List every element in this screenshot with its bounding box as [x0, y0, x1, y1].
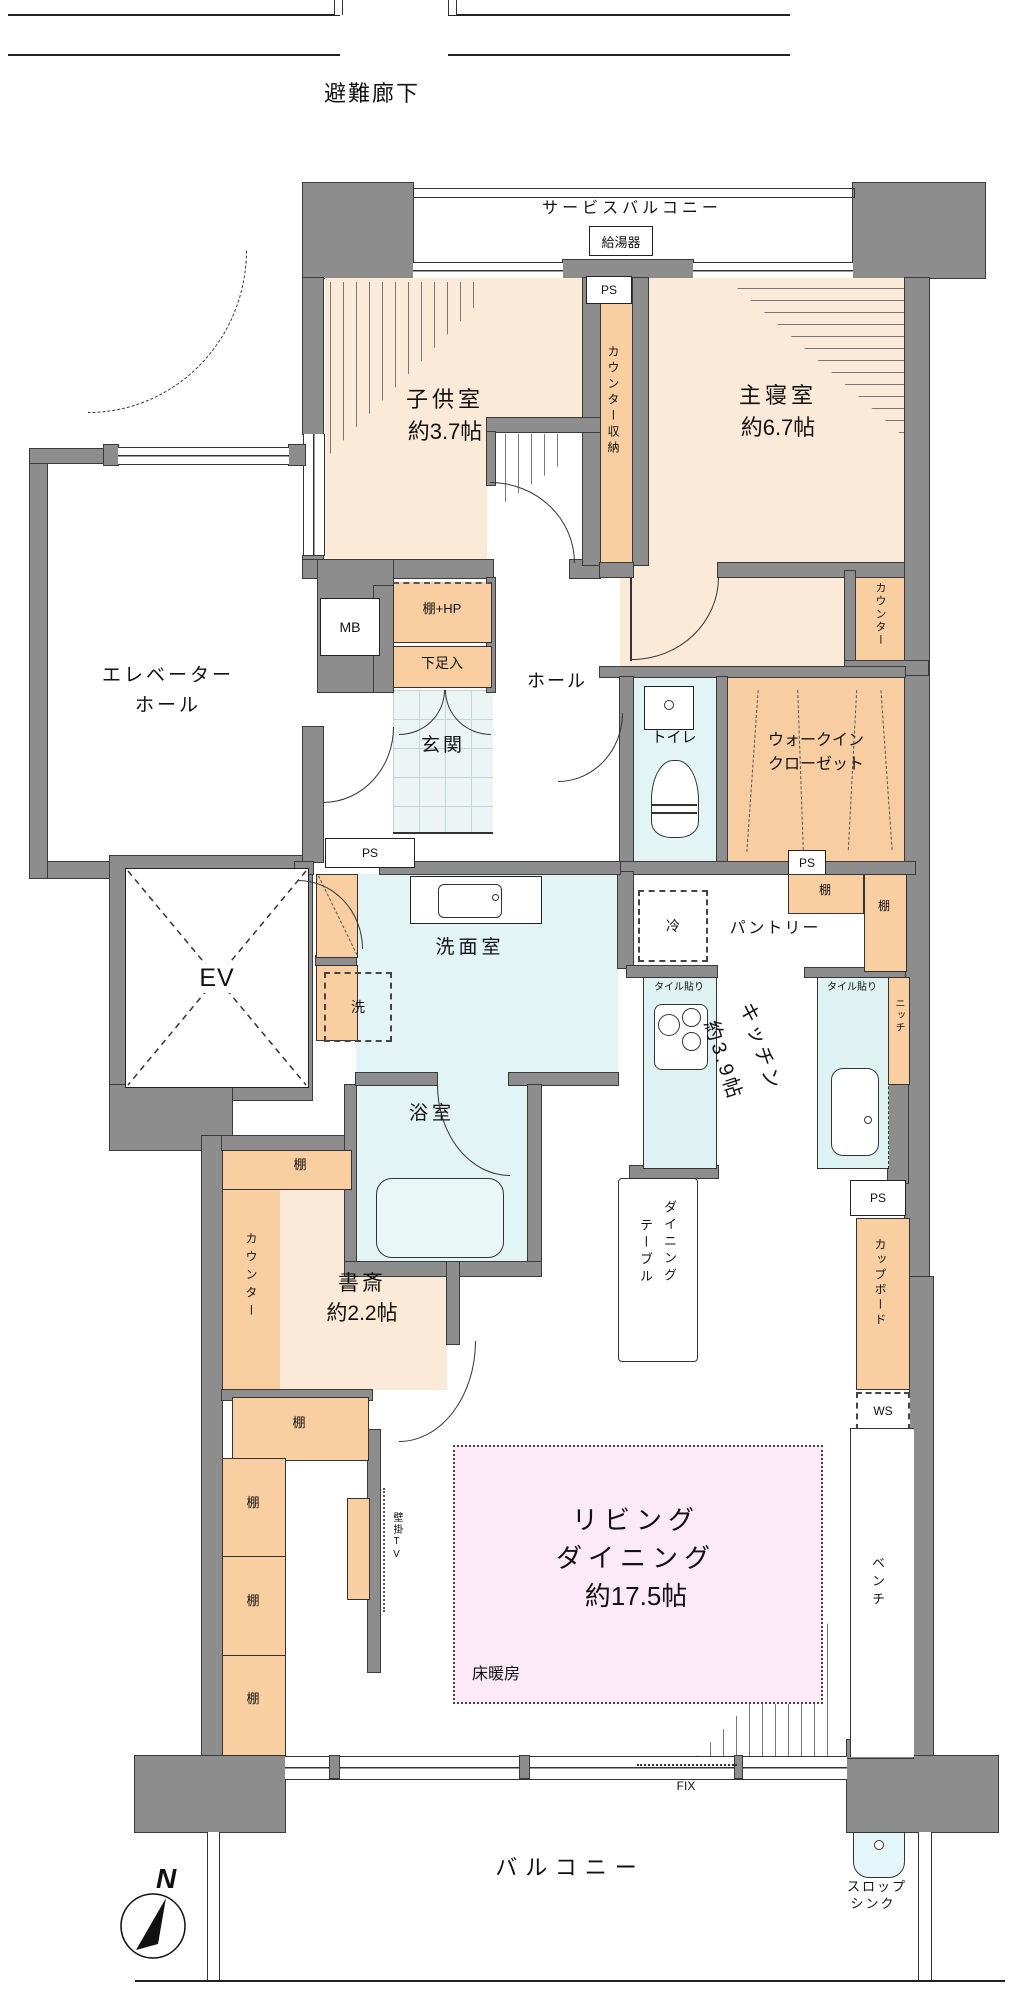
corridor-wall-riser-left — [334, 0, 343, 15]
window-living-balcony — [285, 1756, 847, 1780]
mb-box: MB — [320, 598, 380, 656]
corridor-wall-left — [8, 14, 340, 56]
wall-block-bottomright — [847, 1756, 998, 1832]
water-heater-label: 給湯器 — [601, 232, 640, 251]
ps-label: PS — [601, 283, 617, 297]
ps-label: PS — [870, 1191, 886, 1205]
balcony-rail-right — [918, 1832, 932, 1980]
compass: N — [106, 1858, 201, 1968]
dining-table-label1: ダイニング — [660, 1200, 679, 1285]
bench-label: ベンチ — [868, 1556, 887, 1610]
ps-box-cupboard: PS — [850, 1180, 906, 1216]
escape-corridor-label: 避難廊下 — [324, 82, 420, 106]
dining-table-label2: テーブル — [636, 1218, 655, 1286]
entrance-label: 玄関 — [421, 736, 465, 757]
living-size: 約17.5帖 — [585, 1582, 688, 1611]
elevator-hall-label2: ホール — [135, 696, 201, 717]
dining-table — [618, 1178, 698, 1362]
ps-box-top: PS — [586, 276, 632, 304]
wall-block-topright — [853, 183, 985, 278]
shelf-label: 棚 — [292, 1416, 305, 1430]
floor-heating-label: 床暖房 — [472, 1666, 520, 1684]
wall — [30, 449, 110, 463]
balcony-label: バルコニー — [495, 1856, 645, 1880]
toilet-bowl — [651, 760, 699, 838]
window-elevator-hall — [118, 447, 289, 465]
door-arc-study — [399, 1341, 476, 1442]
study-counter-label: カウンター — [243, 1232, 260, 1322]
shelf-label: 棚 — [246, 1594, 259, 1608]
slop-sink — [853, 1832, 905, 1878]
counter-storage-label: カウンター収納 — [605, 345, 622, 457]
cupboard-label: カップボード — [872, 1238, 889, 1328]
door-leaf — [630, 577, 632, 661]
ws-label: WS — [873, 1404, 892, 1418]
pantry-label: パントリー — [730, 920, 821, 938]
wall-elevator-hall-left — [30, 455, 47, 878]
living-label1: リビング — [572, 1506, 700, 1535]
toilet-bowl-line — [651, 804, 697, 806]
corridor-wall-riser-right — [448, 0, 457, 15]
window-mullion — [735, 1756, 742, 1778]
wall — [620, 862, 788, 874]
kitchen-sink — [831, 1068, 879, 1156]
study-label: 書斎 — [338, 1272, 386, 1295]
compass-north-label: N — [156, 1863, 177, 1894]
wall — [356, 1073, 437, 1085]
wall-right-upper — [905, 278, 929, 1277]
master-bedroom-label: 主寝室 — [739, 384, 817, 408]
wall — [303, 727, 323, 862]
wall — [303, 278, 323, 434]
wall — [620, 677, 633, 864]
wall — [509, 1073, 618, 1085]
wall — [104, 445, 118, 465]
vanity-faucet — [492, 894, 499, 901]
wall — [717, 677, 727, 864]
wall-tv-label: 壁掛TV — [389, 1512, 404, 1562]
wall — [487, 418, 600, 432]
wall — [487, 432, 495, 485]
study-size: 約2.2帖 — [326, 1302, 397, 1325]
toilet-bowl-line — [651, 812, 697, 814]
fix-label: FIX — [677, 1780, 696, 1793]
wall-left-lower — [202, 1136, 222, 1758]
shoe-box-label: 下足入 — [421, 656, 463, 671]
washer-label: 洗 — [351, 997, 365, 1017]
window-mullion — [330, 1756, 339, 1778]
wall-tv-box — [347, 1498, 370, 1600]
ws-box: WS — [856, 1392, 910, 1430]
wall — [633, 278, 648, 565]
shelf-label: 棚 — [819, 884, 831, 897]
wall-block-bottomleft — [135, 1756, 285, 1832]
slop-sink-drain — [874, 1840, 884, 1850]
bedroom-counter-label: カウンター — [872, 582, 888, 647]
ps-box-washroom: PS — [325, 838, 415, 868]
bottom-boundary-band — [135, 1980, 1005, 2000]
water-heater-box: 給湯器 — [589, 226, 653, 256]
wall — [627, 966, 717, 977]
wall — [600, 563, 633, 577]
study-top-shelf — [222, 1150, 352, 1190]
wall-block-topleft — [303, 183, 413, 278]
service-balcony-railing — [413, 188, 855, 198]
elevator-label: EV — [195, 964, 238, 993]
vanity-basin — [438, 884, 502, 918]
shelf-label: 棚 — [293, 1158, 306, 1172]
door-arc-lobby — [323, 727, 394, 803]
compass-needle — [136, 1898, 166, 1950]
hall-label: ホール — [527, 672, 587, 692]
toilet-tank-button — [664, 700, 674, 710]
bathtub — [376, 1178, 504, 1258]
window-kids-side — [303, 434, 325, 556]
kids-room-size: 約3.7帖 — [408, 420, 483, 444]
shelf-label: 棚 — [246, 1692, 259, 1706]
ps-label: PS — [362, 846, 378, 860]
wall — [289, 445, 305, 465]
wall — [600, 667, 905, 677]
wall — [718, 563, 905, 577]
wall — [618, 872, 633, 968]
shelf-label: 棚 — [878, 900, 890, 913]
kids-room-label: 子供室 — [406, 388, 484, 412]
tiled-label: タイル貼り — [654, 982, 704, 993]
refrigerator-label: 冷 — [666, 916, 680, 936]
wall — [447, 1262, 459, 1344]
niche-label: ニッチ — [891, 998, 906, 1034]
shelf-label: 棚 — [246, 1496, 259, 1510]
elevator-box: EV — [125, 868, 309, 1088]
wall — [888, 1083, 908, 1183]
slop-sink-label2: シンク — [850, 1897, 895, 1911]
wall — [528, 1085, 541, 1276]
powder-room-label: 洗面室 — [435, 938, 504, 959]
stove-burner — [682, 1032, 701, 1051]
wall — [380, 862, 620, 874]
tiled-label: タイル貼り — [827, 982, 877, 993]
mb-label: MB — [340, 619, 361, 635]
wall — [822, 862, 915, 874]
service-balcony-label: サービスバルコニー — [542, 200, 722, 218]
washer-box: 洗 — [324, 972, 392, 1042]
slop-sink-label1: スロップ — [847, 1880, 907, 1894]
ps-label: PS — [799, 856, 815, 870]
elevator-hall-label1: エレベーター — [102, 666, 234, 687]
wall — [845, 571, 855, 673]
window-dotted-segment — [637, 1764, 737, 1766]
wic-label1: ウォークイン — [768, 732, 864, 750]
corridor-wall-right — [448, 14, 790, 56]
stove-burner — [658, 1014, 680, 1036]
window-mullion — [520, 1756, 529, 1778]
wall-tv-dotted-line — [383, 1488, 385, 1612]
wic-label2: クローゼット — [768, 756, 864, 774]
shelf-box — [864, 874, 907, 972]
master-bedroom-size: 約6.7帖 — [741, 416, 816, 440]
living-label2: ダイニング — [556, 1544, 716, 1573]
refrigerator-box: 冷 — [638, 890, 708, 962]
sink-faucet — [864, 1116, 872, 1124]
toilet-label: トイレ — [651, 730, 696, 747]
floor-plan: 避難廊下 サービスバルコニー 給湯器 — [0, 0, 1009, 2000]
wall — [222, 1136, 350, 1150]
ps-box-wic: PS — [788, 850, 826, 876]
shelf-hp-label: 棚+HP — [423, 602, 462, 616]
door-arc-corridor — [88, 250, 247, 413]
balcony-rail-left — [207, 1832, 220, 1980]
